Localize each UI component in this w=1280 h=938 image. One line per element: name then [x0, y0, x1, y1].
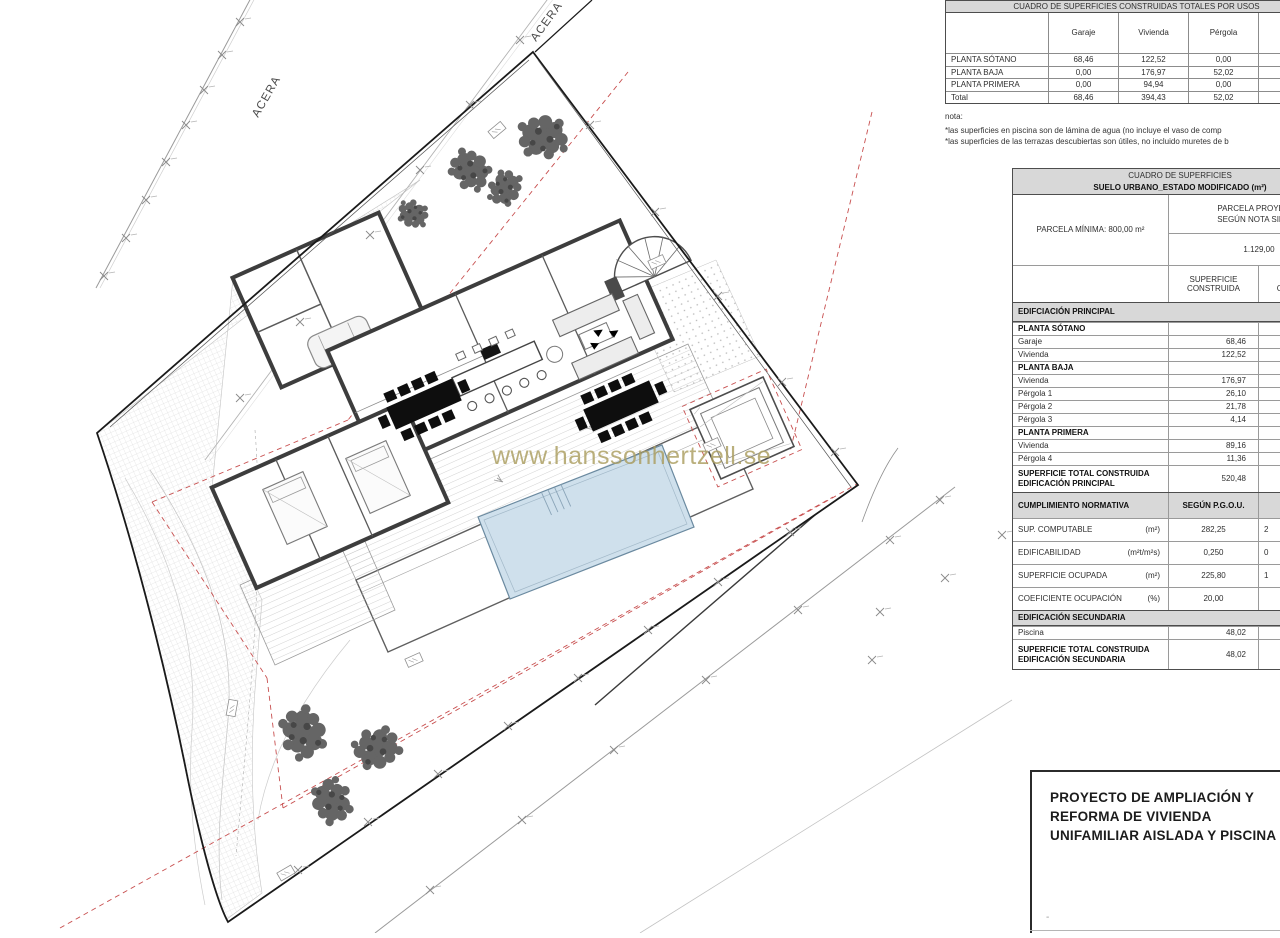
normativa-row-proyecto: 0: [1259, 541, 1280, 564]
normativa-row-unit: (m²t/m²s): [1128, 548, 1168, 557]
acera-top-label: ACERA: [529, 0, 566, 44]
usage-row-value: 0,00: [1049, 66, 1119, 79]
normativa-row-pgou: 282,25: [1169, 518, 1259, 541]
usage-row: PLANTA BAJA0,00176,9752,02: [946, 66, 1280, 79]
normativa-row-label: SUP. COMPUTABLE(m²): [1013, 518, 1169, 541]
normativa-row-pgou: 225,80: [1169, 564, 1259, 587]
surfaces-title-line2: SUELO URBANO_ESTADO MODIFICADO (m²): [1093, 182, 1266, 194]
principal-total-row: SUPERFICIE TOTAL CONSTRUIDA EDIFICACIÓN …: [1013, 465, 1280, 492]
watermark: www.hanssonhertzell.se: [492, 442, 771, 471]
normativa-row: SUP. COMPUTABLE(m²)282,252: [1013, 518, 1280, 541]
secundaria-row-proyecto: [1259, 626, 1280, 639]
tree-icon: [518, 115, 568, 159]
principal-row: Pérgola 126,10: [1013, 387, 1280, 400]
principal-row-value: 11,36: [1169, 452, 1259, 465]
principal-row-proyecto: [1259, 322, 1280, 335]
normativa-row-proyecto: 2: [1259, 518, 1280, 541]
secundaria-rows: Piscina48,02: [1013, 626, 1280, 639]
normativa-row-label: EDIFICABILIDAD(m²t/m²s): [1013, 541, 1169, 564]
principal-row-label: Pérgola 3: [1013, 413, 1169, 426]
principal-row-label: Pérgola 1: [1013, 387, 1169, 400]
project-title-line1: PROYECTO DE AMPLIACIÓN Y: [1050, 788, 1280, 807]
usage-row-value: 0,00: [1189, 78, 1259, 91]
principal-row-value: [1169, 361, 1259, 374]
section-principal: EDIFCIACIÓN PRINCIPAL: [1013, 302, 1280, 322]
secundaria-row: Piscina48,02: [1013, 626, 1280, 639]
parcela-minima: PARCELA MÍNIMA: 800,00 m²: [1013, 195, 1169, 265]
usage-table: CUADRO DE SUPERFICIES CONSTRUIDAS TOTALE…: [945, 0, 1280, 104]
principal-row-proyecto: [1259, 374, 1280, 387]
usage-table-header: GarajeViviendaPérgola: [946, 13, 1280, 53]
principal-row-label: PLANTA BAJA: [1013, 361, 1169, 374]
principal-row-value: [1169, 322, 1259, 335]
project-title-line2: REFORMA DE VIVIENDA: [1050, 807, 1280, 826]
usage-row: Total68,46394,4352,02: [946, 91, 1280, 104]
surfaces-col-headers: SUPERFICIE CONSTRUIDA SUPERFICIE COMPUTA…: [1013, 265, 1280, 302]
principal-row-proyecto: [1259, 439, 1280, 452]
principal-row-label: PLANTA SÓTANO: [1013, 322, 1169, 335]
usage-row-value: 0,00: [1189, 53, 1259, 66]
normativa-row-unit: (m²): [1145, 525, 1168, 534]
normativa-row-unit: (%): [1148, 594, 1168, 603]
usage-row-value-clipped: [1259, 91, 1280, 104]
tree-icon: [306, 773, 360, 830]
usage-row-value: 122,52: [1119, 53, 1189, 66]
usage-row-value: 68,46: [1049, 91, 1119, 104]
usage-table-notes: nota: *las superficies en piscina son de…: [945, 111, 1280, 147]
architectural-drawing-page: { "watermark": "www.hanssonhertzell.se",…: [0, 0, 1280, 933]
tree-icon: [394, 196, 433, 233]
principal-row-label: PLANTA PRIMERA: [1013, 426, 1169, 439]
tree-icon: [347, 720, 406, 776]
principal-row: Vivienda176,97: [1013, 374, 1280, 387]
usage-row-value: 52,02: [1189, 91, 1259, 104]
usage-table-title: CUADRO DE SUPERFICIES CONSTRUIDAS TOTALE…: [945, 0, 1280, 13]
usage-col-garaje: Garaje: [1049, 13, 1119, 53]
principal-row-value: 122,52: [1169, 348, 1259, 361]
parcela-proyecto-line2: SEGÚN NOTA SIMPLE: [1217, 214, 1280, 225]
principal-row-value: 4,14: [1169, 413, 1259, 426]
usage-row-value: 0,00: [1049, 78, 1119, 91]
tree-icon: [272, 700, 333, 765]
principal-row: PLANTA PRIMERA: [1013, 426, 1280, 439]
principal-row: Pérgola 411,36: [1013, 452, 1280, 465]
usage-row: PLANTA SÓTANO68,46122,520,00: [946, 53, 1280, 66]
principal-row-label: Vivienda: [1013, 374, 1169, 387]
usage-row: PLANTA PRIMERA0,0094,940,00: [946, 78, 1280, 91]
usage-row-value: 94,94: [1119, 78, 1189, 91]
principal-row-label: Pérgola 2: [1013, 400, 1169, 413]
normativa-row-pgou: 0,250: [1169, 541, 1259, 564]
principal-row-label: Vivienda: [1013, 439, 1169, 452]
normativa-row-label: SUPERFICIE OCUPADA(m²): [1013, 564, 1169, 587]
note-heading: nota:: [945, 111, 1280, 122]
normativa-row: SUPERFICIE OCUPADA(m²)225,801: [1013, 564, 1280, 587]
usage-col-clipped: [1259, 13, 1280, 53]
principal-rows: PLANTA SÓTANOGaraje68,46Vivienda122,52PL…: [1013, 322, 1280, 465]
secundaria-total-value: 48,02: [1169, 639, 1259, 669]
principal-row: Vivienda122,52: [1013, 348, 1280, 361]
parcela-value: 1.129,00: [1169, 234, 1280, 265]
surfaces-title-line1: CUADRO DE SUPERFICIES: [1128, 170, 1232, 182]
principal-total-value: 520,48: [1169, 465, 1259, 492]
principal-row-value: 89,16: [1169, 439, 1259, 452]
surfaces-table: CUADRO DE SUPERFICIES SUELO URBANO_ESTAD…: [1012, 168, 1280, 670]
principal-row: Pérgola 221,78: [1013, 400, 1280, 413]
normativa-row-unit: (m²): [1145, 571, 1168, 580]
title-block-bottom-rule: [1030, 930, 1280, 931]
principal-row-value: 68,46: [1169, 335, 1259, 348]
principal-row-proyecto: [1259, 426, 1280, 439]
parcela-row: PARCELA MÍNIMA: 800,00 m² PARCELA PROYEC…: [1013, 195, 1280, 265]
principal-row: PLANTA BAJA: [1013, 361, 1280, 374]
principal-row-proyecto: [1259, 348, 1280, 361]
usage-row-label: PLANTA BAJA: [946, 66, 1049, 79]
project-title-line3: UNIFAMILIAR AISLADA Y PISCINA: [1050, 826, 1280, 845]
normativa-row: COEFICIENTE OCUPACIÓN(%)20,00: [1013, 587, 1280, 610]
normativa-row-pgou: 20,00: [1169, 587, 1259, 610]
usage-row-value-clipped: [1259, 66, 1280, 79]
note-line: *las superficies en piscina son de lámin…: [945, 125, 1280, 136]
principal-row: Vivienda89,16: [1013, 439, 1280, 452]
normativa-row-proyecto: [1259, 587, 1280, 610]
usage-row-value: 52,02: [1189, 66, 1259, 79]
section-secundaria: EDIFICACIÓN SECUNDARIA: [1013, 610, 1280, 626]
note-line: *las superficies de las terrazas descubi…: [945, 136, 1280, 147]
principal-row-value: 26,10: [1169, 387, 1259, 400]
normativa-row-proyecto: 1: [1259, 564, 1280, 587]
usage-row-value-clipped: [1259, 78, 1280, 91]
usage-row-value-clipped: [1259, 53, 1280, 66]
usage-row-label: Total: [946, 91, 1049, 104]
usage-col-vivienda: Vivienda: [1119, 13, 1189, 53]
normativa-rows: SUP. COMPUTABLE(m²)282,252EDIFICABILIDAD…: [1013, 518, 1280, 610]
principal-row-label: Pérgola 4: [1013, 452, 1169, 465]
principal-row-value: [1169, 426, 1259, 439]
principal-row-label: Vivienda: [1013, 348, 1169, 361]
usage-row-label: PLANTA PRIMERA: [946, 78, 1049, 91]
surfaces-table-title: CUADRO DE SUPERFICIES SUELO URBANO_ESTAD…: [1012, 168, 1280, 195]
principal-row-proyecto: [1259, 413, 1280, 426]
secundaria-total-row: SUPERFICIE TOTAL CONSTRUIDA EDIFICACIÓN …: [1013, 639, 1280, 669]
usage-table-body: PLANTA SÓTANO68,46122,520,00PLANTA BAJA0…: [946, 53, 1280, 103]
parcela-proyecto-line1: PARCELA PROYECTO: [1217, 203, 1280, 214]
title-block: PROYECTO DE AMPLIACIÓN Y REFORMA DE VIVI…: [1030, 770, 1280, 933]
col-construida: SUPERFICIE: [1189, 275, 1237, 284]
principal-row-proyecto: [1259, 361, 1280, 374]
usage-col-empty: [946, 13, 1049, 53]
normativa-header: CUMPLIMIENTO NORMATIVA SEGÚN P.G.O.U. SE…: [1013, 492, 1280, 518]
usage-row-label: PLANTA SÓTANO: [946, 53, 1049, 66]
principal-row-proyecto: [1259, 452, 1280, 465]
usage-row-value: 394,43: [1119, 91, 1189, 104]
normativa-row-label: COEFICIENTE OCUPACIÓN(%): [1013, 587, 1169, 610]
tree-icon: [441, 141, 499, 198]
principal-row: PLANTA SÓTANO: [1013, 322, 1280, 335]
principal-row-proyecto: [1259, 335, 1280, 348]
principal-row: Garaje68,46: [1013, 335, 1280, 348]
secundaria-row-value: 48,02: [1169, 626, 1259, 639]
usage-row-value: 176,97: [1119, 66, 1189, 79]
usage-row-value: 68,46: [1049, 53, 1119, 66]
principal-row-value: 176,97: [1169, 374, 1259, 387]
principal-row-label: Garaje: [1013, 335, 1169, 348]
normativa-row: EDIFICABILIDAD(m²t/m²s)0,2500: [1013, 541, 1280, 564]
principal-row: Pérgola 34,14: [1013, 413, 1280, 426]
col-pgou: SEGÚN P.G.O.U.: [1169, 493, 1259, 518]
secundaria-row-label: Piscina: [1013, 626, 1169, 639]
principal-row-proyecto: [1259, 387, 1280, 400]
principal-row-proyecto: [1259, 400, 1280, 413]
usage-col-pérgola: Pérgola: [1189, 13, 1259, 53]
principal-row-value: 21,78: [1169, 400, 1259, 413]
title-block-dash: -: [1046, 912, 1049, 923]
acera-left-label: ACERA: [250, 74, 283, 120]
